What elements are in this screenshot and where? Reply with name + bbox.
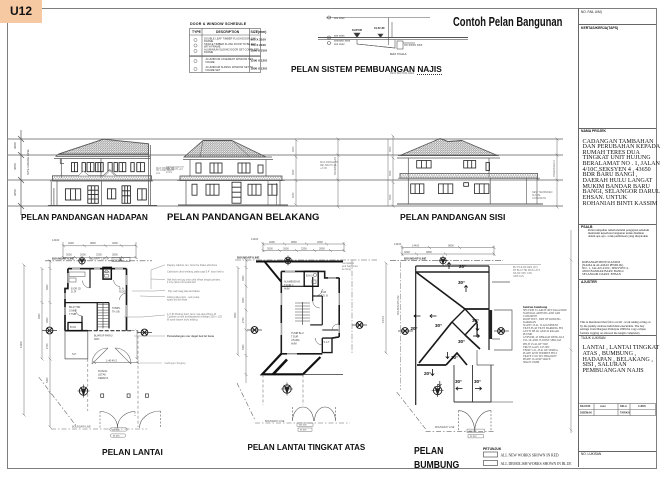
- svg-text:RUANG: RUANG: [98, 369, 107, 373]
- svg-text:FRAME: FRAME: [204, 50, 213, 54]
- svg-text:3050: 3050: [389, 170, 392, 176]
- svg-text:Dapley cabinet ren, how the th: Dapley cabinet ren, how the thaks ebrick…: [167, 263, 218, 267]
- svg-text:3300: 3300: [46, 284, 49, 290]
- svg-text:3000: 3000: [267, 247, 273, 251]
- svg-text:TYPE: TYPE: [192, 30, 202, 34]
- svg-text:5400: 5400: [242, 344, 245, 350]
- svg-text:AT/GRADE/LN: AT/GRADE/LN: [553, 160, 556, 177]
- svg-text:30°: 30°: [458, 280, 465, 285]
- svg-text:30°: 30°: [435, 323, 442, 328]
- svg-text:14400: 14400: [412, 244, 420, 248]
- svg-text:1200 X 1200: 1200 X 1200: [251, 59, 268, 63]
- svg-text:T.TMB: T.TMB: [69, 313, 77, 316]
- svg-text:xxx xxxx: xxx xxxx: [334, 16, 345, 20]
- svg-text:14'4 B: 14'4 B: [382, 316, 385, 323]
- svg-text:ANM: ANM: [284, 288, 290, 291]
- svg-text:BOUNDARYLINE: BOUNDARYLINE: [237, 256, 260, 260]
- svg-text:ALL/APPT LMTS: ALL/APPT LMTS: [89, 258, 108, 261]
- svg-text:2800: 2800: [112, 253, 118, 257]
- svg-text:5400: 5400: [46, 377, 49, 383]
- svg-text:ANM: ANM: [291, 343, 297, 346]
- svg-text:N.DOX: N.DOX: [119, 291, 127, 294]
- svg-text:D.JF: D.JF: [71, 291, 77, 294]
- svg-text:3050: 3050: [389, 194, 392, 200]
- svg-text:spalv dd sbt dbas: spalv dd sbt dbas: [167, 298, 188, 302]
- svg-text:Cabiniyet yihui terilang yada: Cabiniyet yihui terilang yada capi 5.4" …: [167, 269, 224, 273]
- svg-text:B.I B T: B.I B T: [104, 271, 112, 274]
- svg-text:BOUNDARYLINE: BOUNDARYLINE: [404, 256, 427, 260]
- svg-text:2700: 2700: [46, 343, 49, 349]
- svg-text:30°: 30°: [455, 379, 462, 384]
- svg-text:20°: 20°: [424, 371, 431, 376]
- svg-text:1800 X 1200: 1800 X 1200: [251, 67, 268, 71]
- svg-text:GU LDE: GU LDE: [113, 259, 122, 262]
- svg-text:TH.UB: TH.UB: [112, 311, 120, 314]
- svg-text:9800: 9800: [426, 250, 432, 254]
- svg-text:CLR UR: CLR UR: [374, 26, 385, 30]
- svg-text:3300: 3300: [242, 297, 245, 303]
- svg-text:3300: 3300: [46, 317, 49, 323]
- svg-text:BOUNDARYLINE: BOUNDARYLINE: [72, 425, 91, 428]
- svg-text:SELA: SELA: [620, 404, 627, 408]
- svg-text:ARN: ARN: [94, 338, 99, 341]
- svg-text:2800: 2800: [319, 247, 325, 251]
- svg-text:3000: 3000: [292, 146, 295, 152]
- svg-text:9800: 9800: [291, 240, 297, 244]
- svg-text:XX XXXX XXX: XX XXXX XXX: [404, 43, 422, 47]
- svg-text:S.A T: S.A T: [324, 341, 331, 344]
- svg-text:k inly calns slit recled kdt: k inly calns slit recled kdt: [167, 280, 196, 284]
- svg-text:4600: 4600: [269, 240, 275, 244]
- svg-text:3050: 3050: [13, 189, 17, 196]
- svg-text:1800 X 2100: 1800 X 2100: [251, 49, 268, 53]
- svg-text:20°: 20°: [459, 264, 466, 269]
- svg-text:DILUKIS: DILUKIS: [580, 404, 591, 408]
- svg-text:900 X 2100: 900 X 2100: [251, 38, 267, 42]
- svg-text:GRS KLS: GRS KLS: [513, 275, 524, 278]
- svg-text:SITE GRADE LINE: SITE GRADE LINE: [26, 149, 30, 175]
- svg-text:LUKIS: LUKIS: [638, 404, 646, 408]
- svg-text:20°: 20°: [411, 326, 418, 331]
- svg-text:xxx xxx: xxx xxx: [112, 429, 120, 431]
- svg-text:2700: 2700: [242, 317, 245, 323]
- svg-text:BOUNDARYLINE: BOUNDARYLINE: [397, 295, 400, 315]
- svg-text:BGN/AWE/GAN: BGN/AWE/GAN: [334, 157, 337, 175]
- svg-text:xxxx: xxxx: [600, 405, 606, 408]
- svg-text:KAPUR: KAPUR: [352, 28, 362, 32]
- svg-text:LETAK: LETAK: [98, 373, 106, 377]
- svg-text:MAX X'CALA: MAX X'CALA: [390, 52, 407, 56]
- svg-text:ALL NEW WORKS SHOWN IN RED: ALL NEW WORKS SHOWN IN RED: [501, 454, 559, 458]
- svg-text:9300: 9300: [38, 313, 41, 319]
- svg-text:T.D. B: T.D. B: [321, 295, 328, 298]
- svg-text:ke flong: ke flong: [342, 268, 351, 271]
- svg-text:BOUNDARY LINE: BOUNDARY LINE: [435, 426, 455, 429]
- svg-text:Gabingan Singkey: Gabingan Singkey: [165, 361, 187, 365]
- svg-text:30°: 30°: [458, 339, 465, 344]
- svg-text:3050: 3050: [292, 192, 295, 198]
- svg-text:4600: 4600: [68, 241, 74, 245]
- svg-text:750 X 2100: 750 X 2100: [251, 43, 267, 47]
- svg-text:xxx xxx: xxx xxx: [299, 425, 307, 427]
- svg-text:xxx xxxx: xxx xxxx: [334, 34, 345, 38]
- svg-text:xx xxx: xx xxx: [113, 436, 120, 438]
- svg-text:KERETA: KERETA: [98, 376, 108, 380]
- svg-text:3050: 3050: [292, 169, 295, 175]
- svg-text:BOUNDARYLINE: BOUNDARYLINE: [52, 256, 75, 260]
- svg-text:30°: 30°: [451, 355, 458, 360]
- svg-text:FRAME SET: FRAME SET: [206, 68, 221, 72]
- svg-text:BOUNDARY LINE: BOUNDARY LINE: [265, 420, 285, 423]
- svg-text:3200: 3200: [301, 247, 307, 251]
- svg-text:xxx xxxx: xxx xxxx: [334, 42, 345, 46]
- svg-text:14400: 14400: [251, 237, 259, 241]
- svg-text:3000: 3000: [13, 142, 17, 149]
- svg-text:14400: 14400: [52, 238, 60, 242]
- svg-text:2600: 2600: [80, 253, 86, 257]
- svg-text:30°: 30°: [472, 318, 479, 323]
- svg-text:30°: 30°: [474, 379, 481, 384]
- svg-text:SIZE(mm): SIZE(mm): [251, 30, 267, 34]
- svg-text:Pemandangan rear dagat bed tet: Pemandangan rear dagat bed tet bana: [167, 334, 215, 338]
- svg-text:14400: 14400: [20, 340, 23, 348]
- svg-text:B.UR: B.UR: [70, 326, 76, 329]
- svg-text:3050: 3050: [13, 163, 17, 170]
- svg-text:B.M 3: B.M 3: [306, 275, 313, 278]
- svg-text:TARIKH: TARIKH: [620, 411, 630, 415]
- svg-text:1-40-40-2: 1-40-40-2: [106, 360, 117, 363]
- svg-text:9300: 9300: [234, 312, 237, 318]
- svg-text:9800: 9800: [90, 241, 96, 245]
- svg-text:14400: 14400: [394, 242, 402, 246]
- svg-text:ALL DEMOLISH WORKS SHOWN IN BL: ALL DEMOLISH WORKS SHOWN IN BLUE: [501, 462, 573, 466]
- svg-text:S.P: S.P: [72, 353, 76, 356]
- svg-text:4600: 4600: [112, 241, 118, 245]
- svg-text:FRAME: FRAME: [206, 60, 215, 64]
- svg-text:4600: 4600: [317, 240, 323, 244]
- svg-text:lft npsb baceh lxcfv arlding: lft npsb baceh lxcfv arlding: [167, 317, 198, 321]
- svg-text:3300: 3300: [242, 275, 245, 281]
- svg-text:DESCRIPTION: DESCRIPTION: [216, 30, 240, 34]
- svg-text:3000: 3000: [389, 146, 392, 152]
- svg-text:xx xxx: xx xxx: [300, 430, 307, 432]
- svg-text:2600: 2600: [283, 247, 289, 251]
- svg-text:3200: 3200: [96, 253, 102, 257]
- svg-text:DISEMAK: DISEMAK: [580, 411, 592, 415]
- svg-text:4600: 4600: [404, 250, 410, 254]
- svg-text:9800: 9800: [448, 244, 454, 248]
- svg-text:xx xxx: xx xxx: [470, 436, 477, 438]
- svg-text:Pqv sad raag dau ted labau: Pqv sad raag dau ted labau: [168, 289, 200, 293]
